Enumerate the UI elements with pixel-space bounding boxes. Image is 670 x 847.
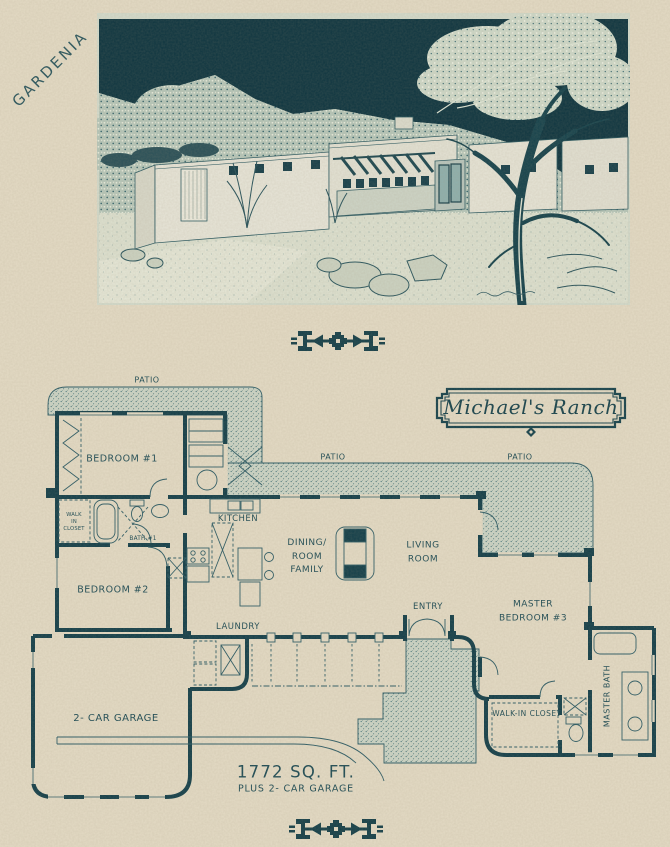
brochure-page: GARDENIA Michael's Ranch PATIO PATIO PAT… xyxy=(0,0,670,847)
room-label-walk-in-closet-small: WALK IN CLOSET xyxy=(63,512,84,532)
room-label-master-bath: MASTER BATH xyxy=(601,665,612,727)
room-label-patio-top: PATIO xyxy=(134,374,159,385)
room-label-patio-center: PATIO xyxy=(320,451,345,462)
room-label-bath1: BATH #1 xyxy=(129,535,156,543)
southwest-divider-bottom xyxy=(289,819,383,839)
room-label-garage: 2- CAR GARAGE xyxy=(73,712,158,726)
room-label-dining-family: DINING/ ROOM FAMILY xyxy=(287,537,326,578)
room-label-bedroom1: BEDROOM #1 xyxy=(86,452,158,465)
room-label-entry: ENTRY xyxy=(413,602,443,614)
entry-walkway xyxy=(358,639,479,763)
room-label-living: LIVING ROOM xyxy=(406,540,439,567)
southwest-divider-top xyxy=(291,331,385,351)
plan-title: Michael's Ranch xyxy=(443,393,618,421)
room-label-kitchen: KITCHEN xyxy=(218,514,258,526)
area-subtext: PLUS 2- CAR GARAGE xyxy=(238,782,354,795)
diamond-ornament-icon xyxy=(526,427,536,437)
room-label-bedroom2: BEDROOM #2 xyxy=(77,583,149,596)
room-label-walk-in-closet: WALK-IN CLOSET xyxy=(492,709,562,720)
room-label-patio-right: PATIO xyxy=(507,451,532,462)
area-text: 1772 SQ. FT. xyxy=(237,760,355,783)
room-label-laundry: LAUNDRY xyxy=(216,622,260,634)
room-label-master-bedroom: MASTER BEDROOM #3 xyxy=(499,599,567,626)
